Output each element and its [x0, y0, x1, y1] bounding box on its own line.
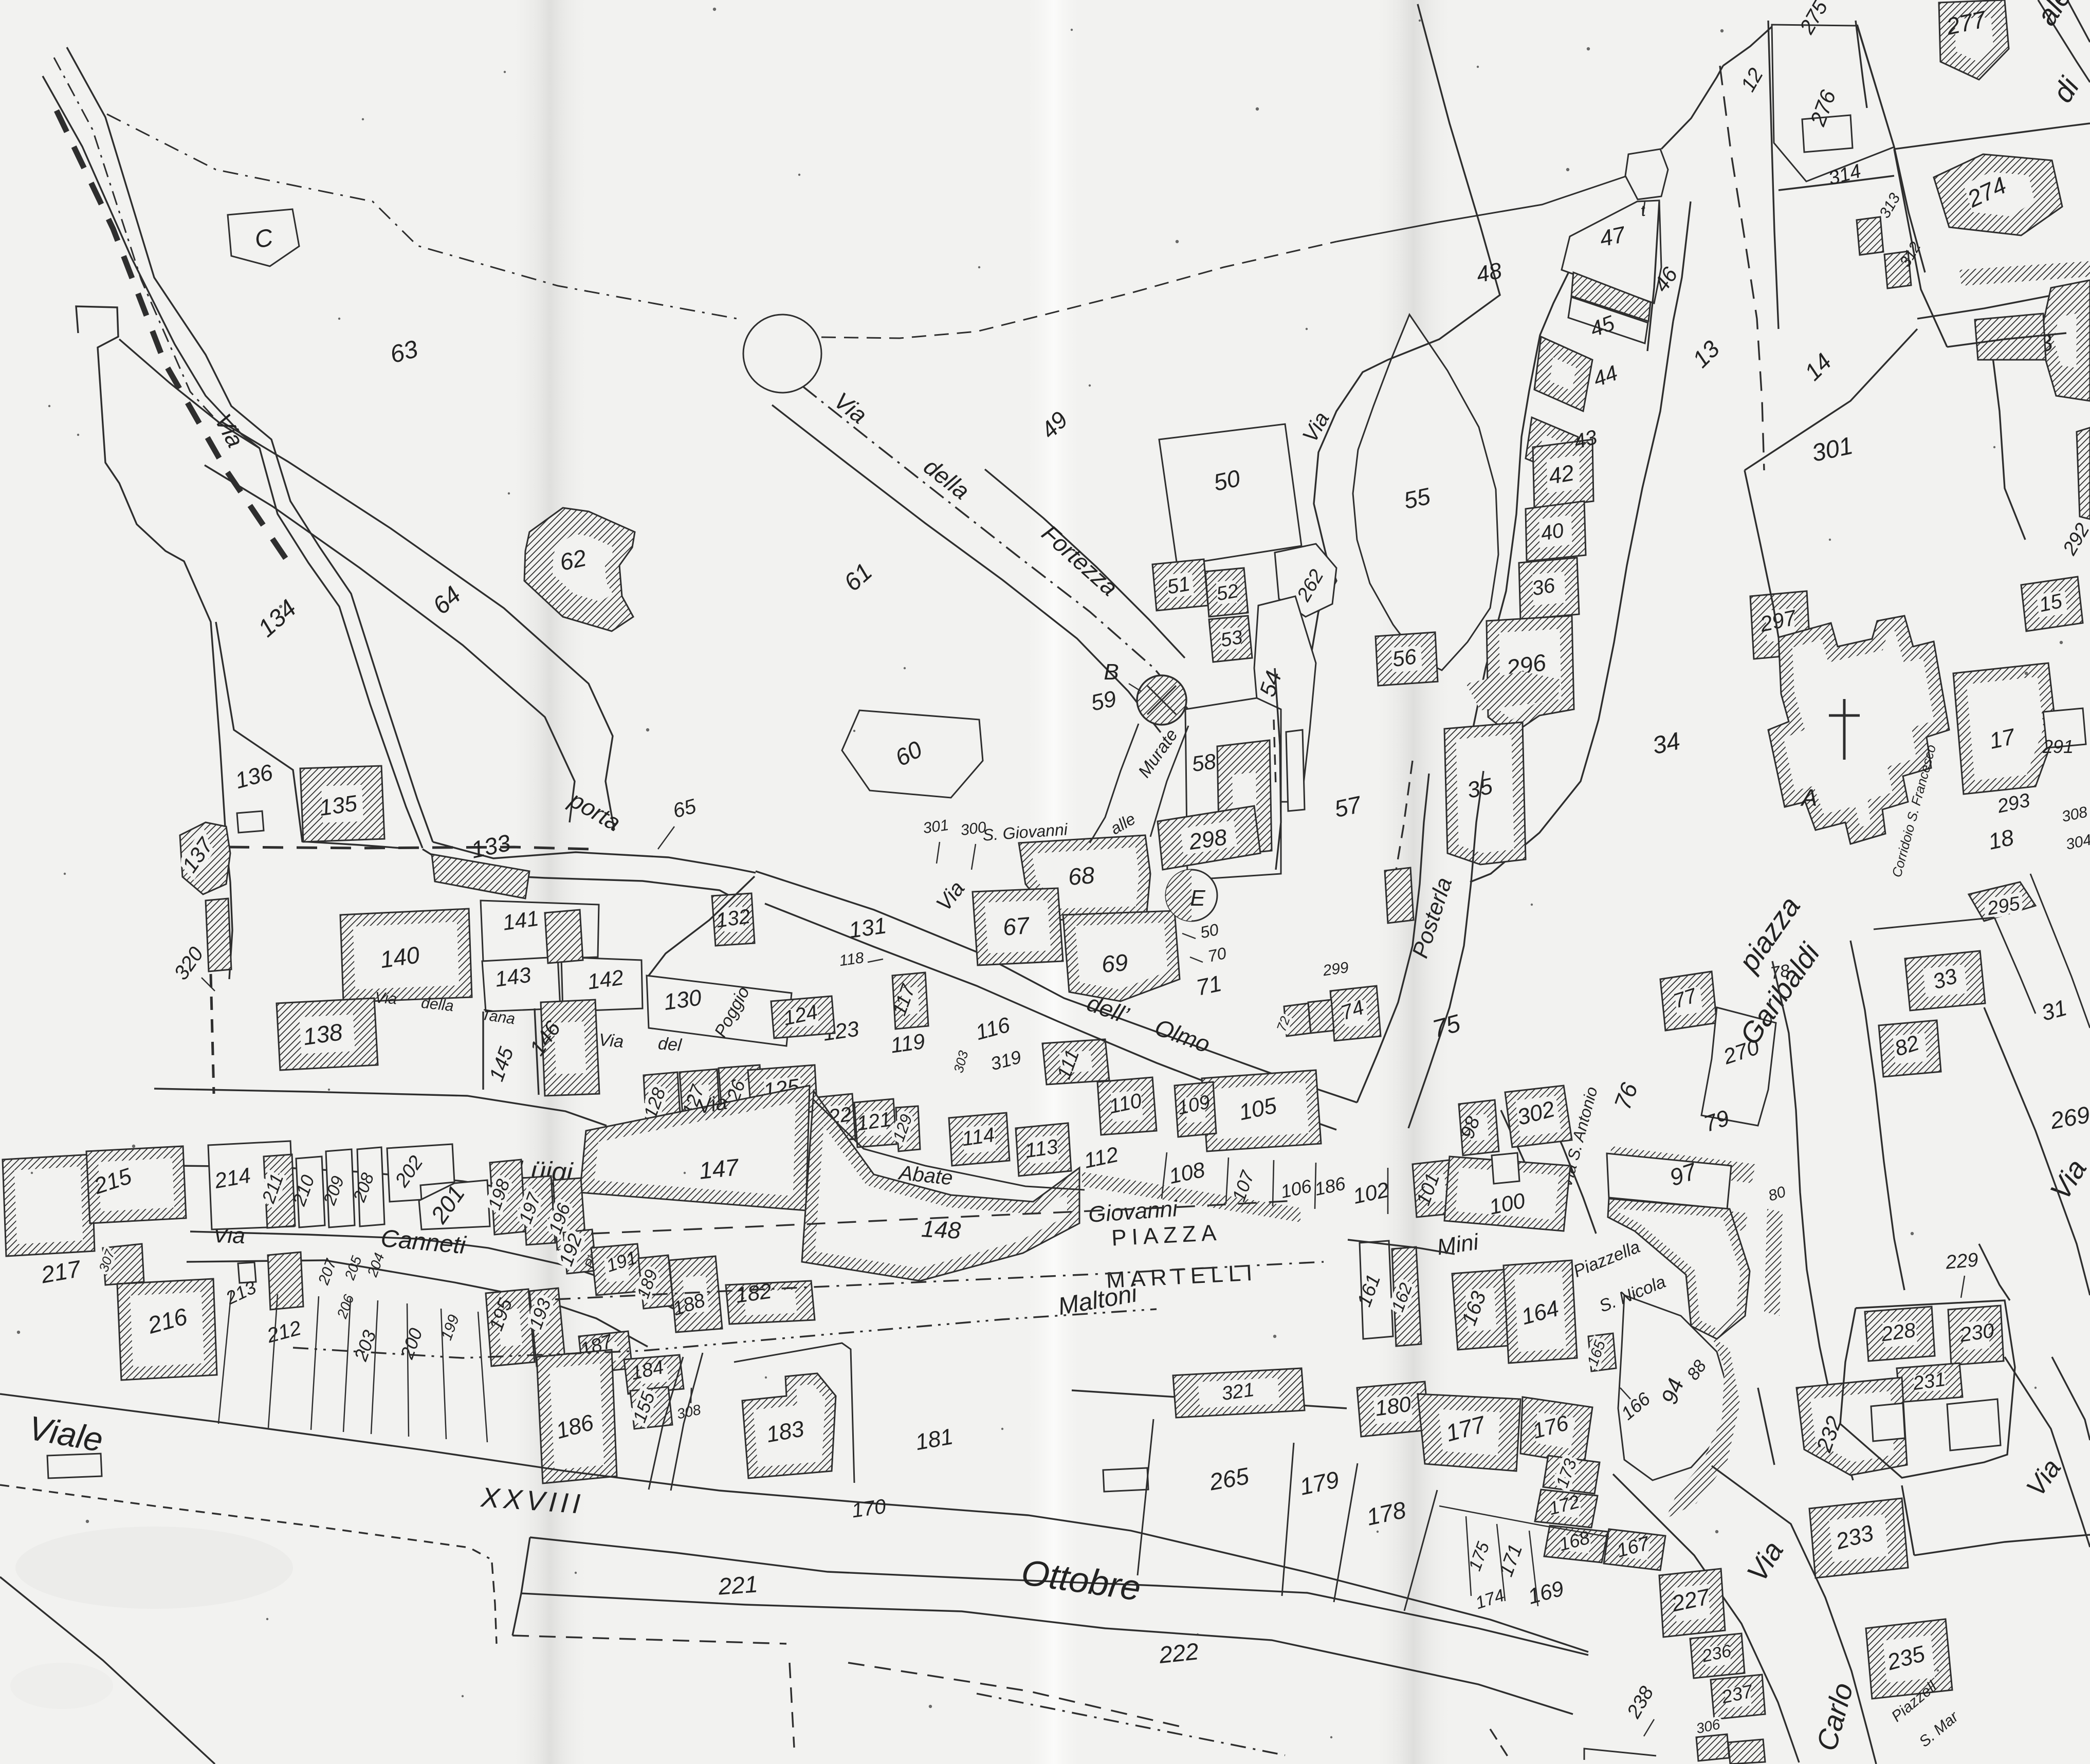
svg-text:Via: Via	[598, 1030, 625, 1052]
svg-text:53: 53	[1219, 627, 1244, 652]
svg-text:70: 70	[1206, 944, 1228, 966]
svg-text:52: 52	[1215, 580, 1240, 605]
svg-text:A: A	[1800, 784, 1818, 811]
svg-text:130: 130	[662, 985, 703, 1015]
svg-text:59: 59	[1089, 686, 1119, 716]
svg-text:71: 71	[1194, 971, 1224, 1001]
svg-text:147: 147	[698, 1153, 740, 1184]
svg-text:140: 140	[378, 941, 421, 973]
svg-text:del: del	[657, 1034, 683, 1055]
svg-text:119: 119	[889, 1029, 927, 1058]
svg-text:E: E	[1190, 886, 1205, 911]
svg-text:170: 170	[850, 1495, 887, 1522]
svg-text:B: B	[1104, 659, 1119, 685]
svg-text:231: 231	[1911, 1369, 1947, 1395]
svg-text:143: 143	[493, 962, 533, 991]
svg-text:298: 298	[1187, 824, 1229, 855]
svg-text:36: 36	[1530, 574, 1557, 600]
svg-text:50: 50	[1199, 920, 1220, 942]
svg-text:56: 56	[1391, 644, 1418, 671]
svg-text:67: 67	[1002, 912, 1031, 941]
svg-text:118: 118	[838, 949, 865, 969]
svg-text:68: 68	[1067, 861, 1096, 890]
svg-text:113: 113	[1024, 1135, 1059, 1162]
svg-text:229: 229	[1945, 1249, 1979, 1273]
svg-text:42: 42	[1547, 460, 1576, 489]
svg-text:121: 121	[855, 1108, 892, 1135]
svg-text:51: 51	[1165, 573, 1191, 599]
svg-text:301: 301	[922, 817, 950, 837]
svg-text:148: 148	[921, 1215, 962, 1244]
svg-text:138: 138	[301, 1018, 344, 1050]
svg-text:230: 230	[1958, 1319, 1995, 1347]
svg-text:182: 182	[734, 1278, 773, 1307]
svg-text:40: 40	[1539, 519, 1565, 545]
svg-text:135: 135	[318, 791, 359, 821]
svg-text:della: della	[420, 995, 454, 1015]
svg-text:180: 180	[1373, 1391, 1413, 1420]
svg-text:34: 34	[1650, 727, 1682, 760]
svg-text:69: 69	[1101, 949, 1129, 978]
svg-text:58: 58	[1190, 749, 1218, 776]
svg-text:114: 114	[961, 1124, 996, 1150]
svg-text:221: 221	[717, 1570, 759, 1600]
svg-text:142: 142	[586, 965, 625, 994]
svg-text:141: 141	[501, 906, 540, 934]
svg-text:222: 222	[1157, 1638, 1200, 1668]
svg-text:291: 291	[2042, 736, 2074, 757]
svg-text:321: 321	[1220, 1379, 1256, 1405]
svg-text:Via: Via	[374, 989, 397, 1008]
svg-text:62: 62	[557, 544, 589, 576]
